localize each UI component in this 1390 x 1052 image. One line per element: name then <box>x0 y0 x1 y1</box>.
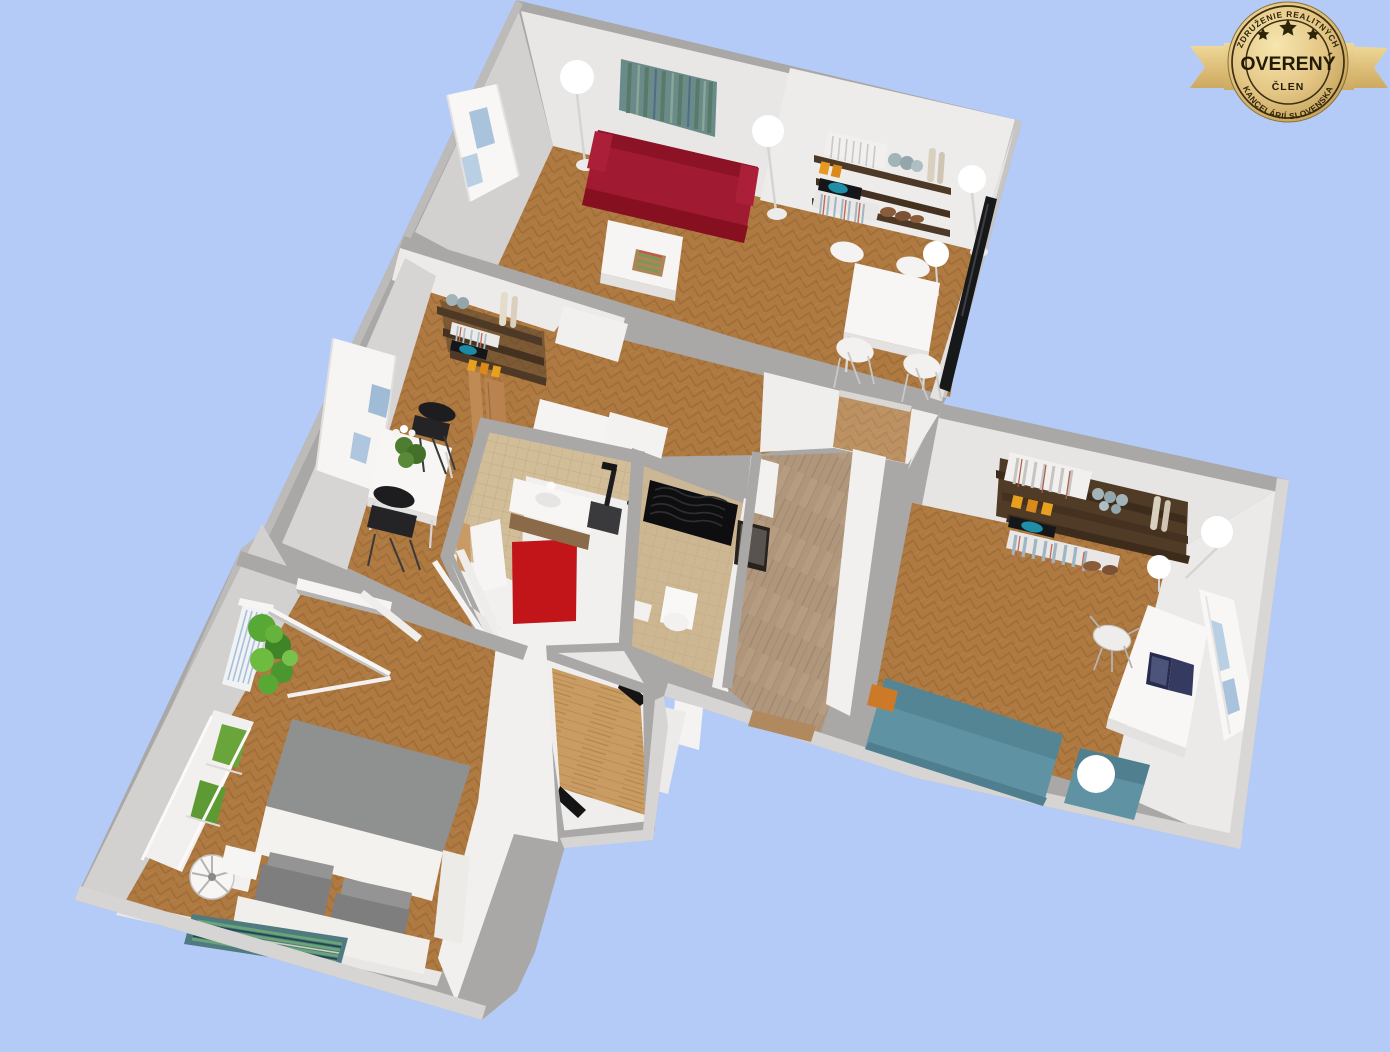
svg-text:ČLEN: ČLEN <box>1272 80 1305 93</box>
svg-text:OVERENÝ: OVERENÝ <box>1240 51 1335 75</box>
